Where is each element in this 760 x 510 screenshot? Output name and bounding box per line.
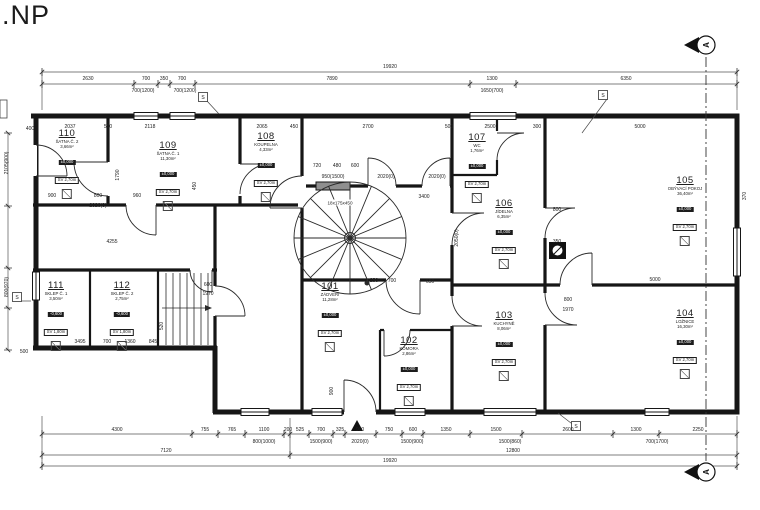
dim-label: 400 <box>26 126 35 132</box>
floor-level-badge: ±0,000 <box>677 340 694 345</box>
ceiling-height-badge: SV 2,70m <box>492 247 516 254</box>
dim-label: 600 <box>204 282 213 288</box>
dim-label: 520 <box>159 322 165 331</box>
ceiling-height-badge: SV 2,70m <box>318 330 342 337</box>
dim-label: 2020(0) <box>89 203 107 209</box>
dim-label: 600 <box>409 427 418 433</box>
ceiling-height-badge: SV 2,70m <box>156 189 180 196</box>
ceiling-height-badge: SV 2,70m <box>492 359 516 366</box>
dim-label: 1500(900) <box>401 439 424 445</box>
dim-label: 3495 <box>74 339 85 345</box>
ceiling-height-badge: SV 2,70m <box>673 357 697 364</box>
dim-label: 700(1700) <box>646 439 669 445</box>
floor-finish-mark <box>499 259 509 269</box>
floor-finish-mark <box>680 236 690 246</box>
dim-label: 800(1000) <box>253 439 276 445</box>
dim-label: 800(970) <box>4 277 10 297</box>
dim-label: 5000 <box>634 124 645 130</box>
dim-label: 765 <box>228 427 237 433</box>
dim-label: 370 <box>742 192 748 201</box>
section-marker-bottom: A <box>702 469 711 475</box>
floor-level-badge: ±0,000 <box>322 313 339 318</box>
room-label-108: 108 KOUPELNA 4,33m² ±0,000 SV 2,70m <box>254 132 278 202</box>
dim-label: 325 <box>336 427 345 433</box>
floor-level-badge: ±0,000 <box>496 230 513 235</box>
dim-label: 1790 <box>115 169 121 180</box>
floor-level-badge: -0,600 <box>114 312 130 317</box>
dim-label: 1300 <box>486 76 497 82</box>
dim-label: 500 <box>104 124 113 130</box>
edge-fragment <box>0 100 7 118</box>
dim-label: 12800 <box>506 448 520 454</box>
dim-label: 800 <box>94 193 103 199</box>
dim-label: 2630 <box>82 76 93 82</box>
dim-label: 6350 <box>620 76 631 82</box>
dim-label: 480 <box>333 163 342 169</box>
room-label-109: 109 ŠATNA Č. 1 11,30m² ±0,000 SV 2,70m <box>156 141 180 211</box>
stair-spec-label: 18x175x450 <box>327 201 352 206</box>
dim-label: 1350 <box>440 427 451 433</box>
dim-label: 1970 <box>562 307 573 313</box>
room-label-103: 103 KUCHYNĚ 8,06m² ±0,000 SV 2,70m <box>492 311 516 381</box>
ceiling-height-badge: SV 1,80m <box>44 329 68 336</box>
dim-label: 7120 <box>160 448 171 454</box>
dim-label: 950(1500) <box>322 174 345 180</box>
room-label-102: 102 KOMORA 2,86m² ±0,000 SV 2,70m <box>397 336 421 406</box>
dim-label: 19920 <box>383 458 397 464</box>
dim-label: 845 <box>149 339 158 345</box>
dim-label: 200 <box>284 427 293 433</box>
dim-label: 1500(900) <box>310 439 333 445</box>
floor-plan-canvas: .NP <box>0 0 760 510</box>
floor-level-badge: ±0,000 <box>469 164 486 169</box>
dim-label: 700 <box>388 278 397 284</box>
dim-label: 650 <box>426 279 435 285</box>
windows <box>33 113 741 416</box>
dim-label: 2500 <box>484 124 495 130</box>
dim-label: 1650(700) <box>481 88 504 94</box>
dim-label: 525 <box>296 427 305 433</box>
floor-finish-mark <box>404 396 414 406</box>
ceiling-height-badge: SV 2,70m <box>397 384 421 391</box>
room-label-110: 110 ŠATNA Č. 2 3,66m² ±0,000 SV 2,70m <box>55 129 79 199</box>
floor-level-badge: ±0,000 <box>59 160 76 165</box>
floor-level-badge: ±0,000 <box>258 163 275 168</box>
floor-finish-mark <box>472 193 482 203</box>
dim-label: 900 <box>356 427 365 433</box>
room-label-112: 112 SKLEP Č. 2 2,75m² -0,600 SV 1,80m <box>110 281 134 351</box>
room-label-106: 106 JÍDELNA 6,35m² ±0,000 SV 2,70m <box>492 199 516 269</box>
dim-label: 755 <box>201 427 210 433</box>
floor-finish-mark <box>325 342 335 352</box>
dim-label: 19920 <box>383 64 397 70</box>
dim-label: 2700 <box>362 124 373 130</box>
dim-label: 600 <box>351 163 360 169</box>
ceiling-height-badge: SV 1,80m <box>110 329 134 336</box>
dim-label: 2020(0) <box>351 439 369 445</box>
dim-label: 3400 <box>418 194 429 200</box>
dim-label: 500 <box>445 124 454 130</box>
dim-label: 2050(0) <box>454 229 460 247</box>
room-label-101: 101 ZÁDVEŘÍ 11,28m² ±0,000 SV 2,70m <box>318 282 342 352</box>
floor-level-badge: -0,600 <box>48 312 64 317</box>
wall-marker-layer: SSSS <box>13 91 608 431</box>
ceiling-height-badge: SV 2,70m <box>254 180 278 187</box>
dim-label: 1500 <box>490 427 501 433</box>
room-label-107: 107 WC 1,76m² ±0,000 SV 2,70m <box>465 133 489 203</box>
dim-label: 700 <box>142 76 151 82</box>
floor-level-badge: ±0,000 <box>160 172 177 177</box>
dim-label: 800 <box>564 297 573 303</box>
dim-label: 500 <box>20 349 29 355</box>
dim-label: 960 <box>133 193 142 199</box>
dim-label: 450 <box>192 182 198 191</box>
dim-label: 1970 <box>202 291 213 297</box>
dim-label: 700(1200) <box>132 88 155 94</box>
dim-label: 7890 <box>326 76 337 82</box>
dim-label: 4255 <box>106 239 117 245</box>
stair-treads <box>166 273 208 345</box>
dim-label: 250 <box>370 278 379 284</box>
floor-finish-mark <box>261 192 271 202</box>
floor-finish-mark <box>117 341 127 351</box>
dim-label: 720 <box>313 163 322 169</box>
room-label-104: 104 LOŽNICE 16,30m² ±0,000 SV 2,70m <box>673 309 697 379</box>
dim-label: 1100 <box>259 427 270 433</box>
dim-label: 800 <box>553 207 562 213</box>
outer-walls <box>31 114 739 415</box>
dim-label: 2250 <box>692 427 703 433</box>
floor-finish-mark <box>51 341 61 351</box>
dim-label: 700(1200) <box>174 88 197 94</box>
section-marker-top: A <box>702 42 711 48</box>
inner-walls <box>33 116 737 412</box>
dim-label: 900 <box>329 387 335 396</box>
dim-label: 2020(0) <box>377 174 395 180</box>
floor-finish-mark <box>680 369 690 379</box>
dim-label: 2065 <box>256 124 267 130</box>
room-label-105: 105 OBÝVACÍ POKOJ 36,40m² ±0,000 SV 2,70… <box>668 176 703 246</box>
floor-plan-drawing: 18x175x450 A A SSSS 199202630700 <box>0 0 760 510</box>
dim-label: 350 <box>160 76 169 82</box>
floor-finish-mark <box>62 189 72 199</box>
dim-label: 300 <box>533 124 542 130</box>
partition-walls <box>90 116 497 412</box>
ceiling-height-badge: SV 2,70m <box>55 177 79 184</box>
floor-level-badge: ±0,000 <box>401 367 418 372</box>
dim-label: 700 <box>317 427 326 433</box>
dim-label: 5000 <box>649 277 660 283</box>
dim-label: 4300 <box>111 427 122 433</box>
dim-label: 2600 <box>562 427 573 433</box>
floor-finish-mark <box>163 201 173 211</box>
dim-label: 450 <box>290 124 299 130</box>
wall-marker-leader <box>207 101 219 114</box>
dim-label: 1500(860) <box>499 439 522 445</box>
ceiling-height-badge: SV 2,70m <box>465 181 489 188</box>
dim-label: 2105(900) <box>4 151 10 174</box>
floor-level-badge: ±0,000 <box>496 342 513 347</box>
dim-label: 2118 <box>145 124 156 130</box>
dim-label: 350 <box>553 239 562 245</box>
ceiling-height-badge: SV 2,70m <box>673 224 697 231</box>
dim-label: 700 <box>178 76 187 82</box>
floor-level-badge: ±0,000 <box>677 207 694 212</box>
floor-finish-mark <box>499 371 509 381</box>
room-label-111: 111 SKLEP Č. 1 3,50m² -0,600 SV 1,80m <box>44 281 68 351</box>
dim-label: 2020(0) <box>428 174 446 180</box>
dim-label: 1300 <box>630 427 641 433</box>
dim-label: 750 <box>385 427 394 433</box>
